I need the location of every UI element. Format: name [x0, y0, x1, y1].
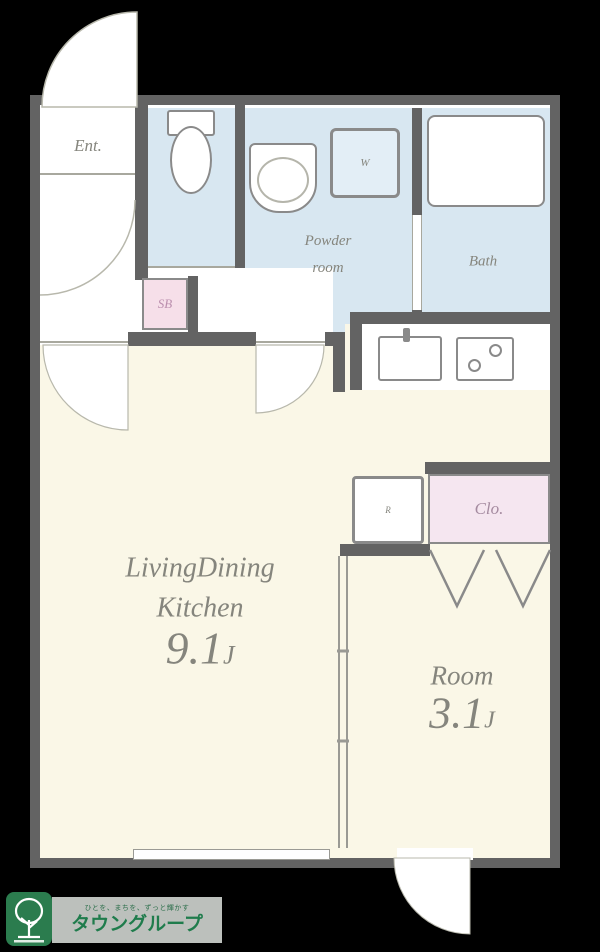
ldk-door-threshold-right: [256, 341, 325, 343]
kitchen-faucet: [403, 328, 410, 342]
ldk-label: LivingDining Kitchen 9.1J: [125, 549, 274, 676]
room-door-opening: [397, 848, 473, 860]
washbasin-bowl: [257, 157, 309, 203]
logo-brand: タウングループ: [71, 914, 203, 936]
kitchen-and-room-floor: [345, 324, 550, 858]
entrance-door-opening: [57, 95, 137, 107]
room-door-swing: [394, 858, 470, 934]
ldk-window: [133, 849, 330, 860]
toilet-bowl: [170, 126, 212, 194]
stove: [456, 337, 514, 381]
ldk-size: 9.1J: [125, 629, 274, 676]
room-label-text: Room: [431, 661, 494, 691]
wall-kitchen-left: [350, 324, 362, 390]
ldk-label-line1: LivingDining: [125, 553, 274, 584]
bathtub: [427, 115, 545, 207]
floorplan-image: Ent. W SB Powder room Bath R Clo. Living…: [0, 0, 600, 952]
wall-ldk-kitchen: [333, 332, 345, 392]
wall-closet-top: [425, 462, 550, 474]
powder-label-line1: Powder: [305, 233, 352, 249]
refrigerator-label: R: [385, 505, 391, 515]
wall-ldk-top: [128, 332, 256, 346]
entrance-door-swing: [42, 12, 137, 107]
logo-tagline: ひとを、まちを、ずっと輝かす: [85, 904, 190, 914]
wall-kitchen-top: [350, 312, 550, 324]
wall-shoebox-stub: [188, 276, 198, 333]
entrance-label: Ent.: [74, 136, 102, 156]
wall-toilet-powder: [235, 105, 245, 268]
wall-entrance-right: [135, 105, 148, 280]
shoebox-label: SB: [158, 296, 172, 312]
closet-label: Clo.: [475, 499, 504, 519]
ldk-door-threshold-left: [40, 341, 128, 343]
room-label: Room 3.1J: [429, 657, 495, 740]
entrance-step-line: [40, 173, 135, 175]
kitchen-sink: [378, 336, 442, 381]
logo-mark: [6, 892, 52, 946]
washer-label: W: [360, 157, 369, 169]
room-size: 3.1J: [429, 695, 495, 740]
wall-room-top: [340, 544, 430, 556]
stove-burner: [468, 359, 481, 372]
bath-label: Bath: [469, 254, 497, 271]
ldk-label-line2: Kitchen: [156, 593, 243, 624]
powder-label-line2: room: [312, 260, 343, 276]
logo-text-block: ひとを、まちを、ずっと輝かす タウングループ: [52, 897, 222, 943]
powder-room-label: Powder room: [305, 228, 352, 282]
bath-door-opening: [412, 215, 422, 310]
toilet-door-line: [148, 266, 235, 268]
tree-icon: [6, 892, 52, 946]
stove-burner: [489, 344, 502, 357]
